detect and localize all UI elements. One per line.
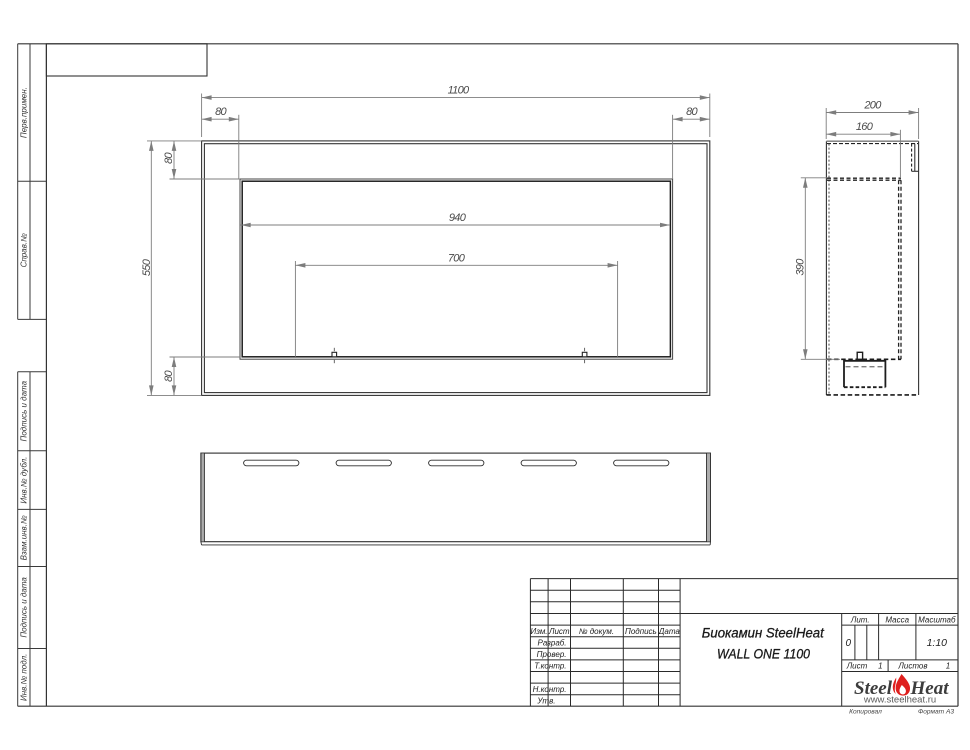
svg-text:Провер.: Провер.	[537, 650, 567, 659]
svg-text:80: 80	[686, 106, 698, 118]
svg-text:Масштаб: Масштаб	[918, 615, 956, 624]
svg-text:1:10: 1:10	[927, 637, 948, 649]
svg-text:Формат А3: Формат А3	[918, 708, 954, 715]
svg-text:1100: 1100	[448, 85, 470, 97]
svg-text:Н.контр.: Н.контр.	[533, 685, 567, 694]
svg-text:80: 80	[215, 106, 227, 118]
svg-text:Подпись: Подпись	[625, 627, 657, 636]
svg-text:Взам.инв.№: Взам.инв.№	[20, 515, 29, 560]
svg-text:Перв.примен.: Перв.примен.	[20, 87, 29, 138]
svg-text:Подпись и дата: Подпись и дата	[20, 380, 29, 441]
svg-text:WALL ONE 1100: WALL ONE 1100	[717, 647, 810, 662]
svg-text:0: 0	[846, 638, 852, 649]
svg-text:80: 80	[163, 152, 175, 164]
svg-text:160: 160	[856, 121, 874, 133]
svg-text:Инв.№ дубл.: Инв.№ дубл.	[20, 457, 29, 504]
svg-text:Дата: Дата	[658, 627, 681, 636]
svg-text:390: 390	[795, 258, 807, 276]
svg-text:Инв.№ подл.: Инв.№ подл.	[20, 654, 29, 701]
svg-text:Разраб.: Разраб.	[538, 639, 567, 648]
svg-text:1: 1	[878, 662, 882, 671]
svg-text:Биокамин SteelHeat: Биокамин SteelHeat	[702, 626, 825, 641]
svg-text:Листов: Листов	[897, 662, 927, 671]
svg-text:700: 700	[448, 252, 466, 264]
svg-text:Лист: Лист	[846, 662, 868, 671]
svg-text:Изм.: Изм.	[530, 627, 547, 636]
svg-text:Утв.: Утв.	[536, 697, 555, 706]
svg-text:Т.контр.: Т.контр.	[534, 662, 566, 671]
svg-text:Справ.№: Справ.№	[20, 233, 29, 267]
svg-text:940: 940	[449, 212, 467, 224]
svg-text:www.steelheat.ru: www.steelheat.ru	[863, 695, 936, 706]
svg-text:Копировал: Копировал	[849, 708, 882, 715]
svg-text:Лист: Лист	[548, 627, 570, 636]
svg-text:Лит.: Лит.	[850, 615, 870, 624]
svg-text:1: 1	[946, 662, 950, 671]
svg-text:550: 550	[141, 258, 153, 276]
svg-text:Подпись и дата: Подпись и дата	[20, 577, 29, 638]
svg-text:80: 80	[163, 370, 175, 382]
svg-text:200: 200	[863, 100, 882, 112]
svg-text:Масса: Масса	[885, 615, 909, 624]
svg-text:№ докум.: № докум.	[579, 627, 614, 636]
